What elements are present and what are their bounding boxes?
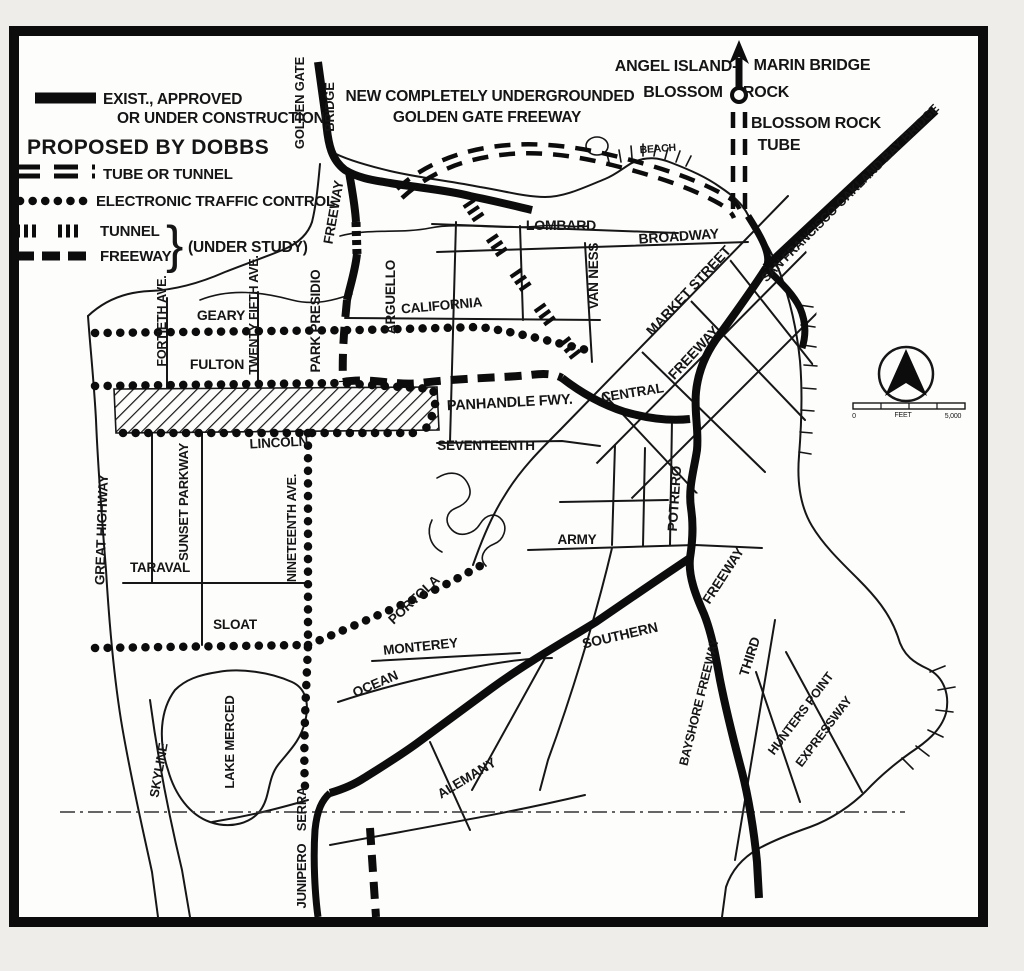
label-new-gg-freeway-1: NEW COMPLETELY UNDERGROUNDED [346, 88, 635, 105]
label-van-ness: VAN NESS [586, 243, 601, 310]
label-blossom-rock-tube-2: TUBE [758, 137, 801, 154]
label-serra: SERRA [294, 786, 309, 831]
label-fulton: FULTON [190, 356, 244, 372]
scale-zero: 0 [852, 413, 856, 420]
label-fortieth-ave: FORTIETH AVE. [155, 275, 169, 366]
label-lombard: LOMBARD [526, 217, 596, 233]
label-blossom: BLOSSOM [643, 84, 723, 101]
legend-tube-label: TUBE OR TUNNEL [103, 166, 233, 183]
scale-max: 5,000 [945, 413, 962, 420]
label-rock: ROCK [743, 84, 790, 101]
legend-freeway-label: FREEWAY [100, 248, 172, 265]
label-golden-gate: GOLDEN GATE [292, 56, 307, 149]
label-twenty-fifth-ave: TWENTY FIFTH AVE. [247, 255, 261, 374]
legend-exist-line1: EXIST., APPROVED [103, 91, 242, 108]
label-blossom-rock-tube-1: BLOSSOM ROCK [751, 115, 882, 132]
map-canvas: EXIST., APPROVED OR UNDER CONSTRUCTION P… [0, 0, 1024, 971]
label-seventeenth: SEVENTEENTH [437, 438, 535, 453]
label-taraval: TARAVAL [130, 560, 190, 575]
label-sloat: SLOAT [213, 617, 258, 632]
label-new-gg-freeway-2: GOLDEN GATE FREEWAY [393, 109, 582, 126]
golden-gate-park-hatch [114, 387, 439, 433]
legend-electronic-label: ELECTRONIC TRAFFIC CONTROL [96, 193, 335, 210]
label-beach: BEACH [639, 142, 676, 157]
label-nineteenth-ave: NINETEENTH AVE. [285, 474, 299, 582]
label-arguello: ARGUELLO [383, 260, 398, 334]
label-bridge: BRIDGE [322, 82, 337, 132]
label-army: ARMY [558, 532, 597, 547]
scanned-map-photo: EXIST., APPROVED OR UNDER CONSTRUCTION P… [0, 0, 1024, 971]
label-sunset-parkway: SUNSET PARKWAY [176, 443, 191, 561]
legend-tunnel-label: TUNNEL [100, 223, 160, 240]
label-angel-island: ANGEL ISLAND- [615, 58, 737, 75]
legend-heading: PROPOSED BY DOBBS [27, 136, 269, 159]
legend-brace: } [166, 216, 183, 274]
legend-under-study-label: (UNDER STUDY) [188, 239, 308, 256]
scale-unit: FEET [894, 412, 912, 419]
label-park-presidio: PARK PRESIDIO [308, 270, 323, 373]
label-marin-bridge: MARIN BRIDGE [754, 57, 871, 74]
label-lincoln: LINCOLN [249, 433, 308, 451]
label-lake-merced: LAKE MERCED [222, 695, 237, 788]
label-geary: GEARY [197, 307, 246, 323]
label-junipero: JUNIPERO [294, 843, 309, 908]
